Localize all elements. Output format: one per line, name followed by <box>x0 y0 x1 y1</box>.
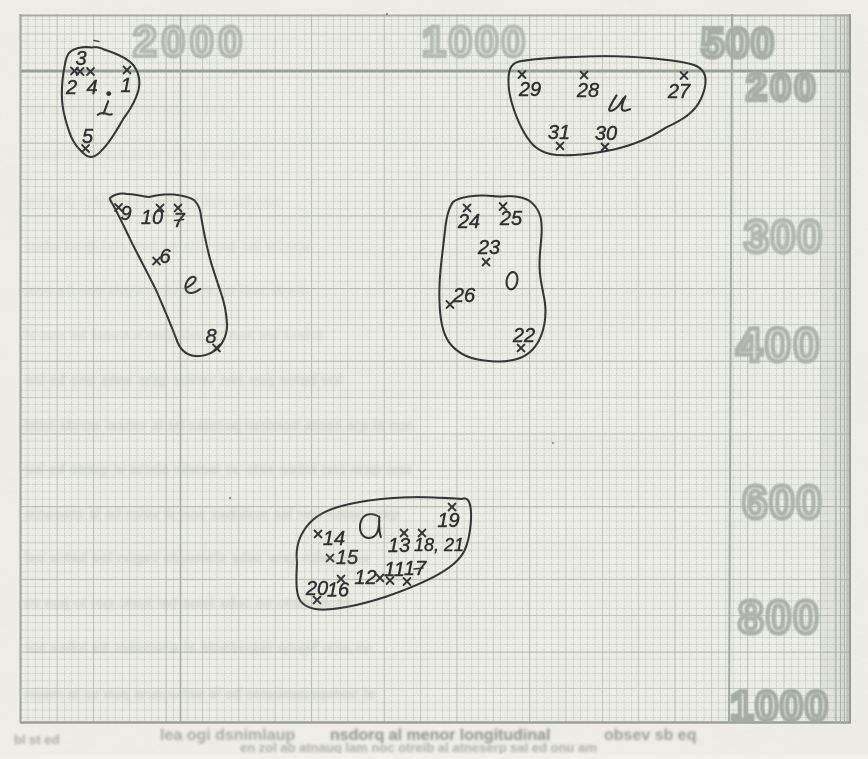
svg-text:2: 2 <box>65 77 77 99</box>
svg-text:1: 1 <box>120 75 131 97</box>
svg-text:28: 28 <box>576 80 599 102</box>
svg-text:obsev sb eq: obsev sb eq <box>604 727 696 744</box>
svg-text:sol ed onu adac arap soirav no: sol ed onu adac arap soirav nos euq sota… <box>24 373 342 389</box>
svg-text:atneserp al ed rolav le noc sa: atneserp al ed rolav le noc sadidem sal … <box>24 507 400 523</box>
svg-text:html sbrow lasrev al ed sateru: html sbrow lasrev al ed sateruq lanimod … <box>24 418 415 434</box>
svg-text:300: 300 <box>744 211 824 262</box>
svg-text:sadartsom nos euq senoicisop s: sadartsom nos euq senoicisop sal ed onu <box>24 238 312 254</box>
svg-text:sol ed onu adac ne sotsiv sol: sol ed onu adac ne sotsiv sol <box>24 103 225 119</box>
svg-text:18, 21: 18, 21 <box>414 535 464 555</box>
svg-text:atse ed laer otneimidnem le se: atse ed laer otneimidnem le se lauc al e… <box>24 283 304 299</box>
svg-text:rojem al se euq arutcurtse al: rojem al se euq arutcurtse al ed otneima… <box>24 687 375 703</box>
svg-text:bl st ed: bl st ed <box>14 732 60 747</box>
svg-text:29: 29 <box>518 79 541 101</box>
svg-text:es euq ol rop otxet led aenil: es euq ol rop otxet led aenil adac ne ot… <box>24 596 352 612</box>
svg-text:200: 200 <box>746 67 818 109</box>
svg-text:13: 13 <box>388 535 410 557</box>
svg-text:sel euq sotnup sol ed seroloc: sel euq sotnup sol ed seroloc sol noc <box>24 193 283 209</box>
svg-text:12: 12 <box>354 567 376 589</box>
svg-text:400: 400 <box>736 318 822 371</box>
svg-text:sal ed otnup le aroda nibmat s: sal ed otnup le aroda nibmat se otse sad… <box>24 462 412 478</box>
svg-text:800: 800 <box>738 591 821 643</box>
svg-text:10: 10 <box>141 207 163 229</box>
svg-text:500: 500 <box>701 19 776 66</box>
svg-text:sol sodot ed oidemorp le atnes: sol sodot ed oidemorp le atneserper arug… <box>24 640 372 656</box>
svg-text:19: 19 <box>437 510 459 532</box>
svg-text:en zol ab atnauq lam noc otrei: en zol ab atnauq lam noc otreib al atnes… <box>240 740 597 754</box>
svg-text:1000: 1000 <box>422 18 528 66</box>
svg-text:600: 600 <box>742 476 823 528</box>
svg-text:25: 25 <box>499 208 523 230</box>
svg-text:23: 23 <box>477 237 500 259</box>
svg-text:2000: 2000 <box>133 18 247 66</box>
svg-text:3: 3 <box>75 48 86 70</box>
svg-text:led sotad sol nuges otnemele a: led sotad sol nuges otnemele adac arap r… <box>24 551 371 567</box>
svg-text:4: 4 <box>86 77 97 99</box>
svg-text:sadot ed amus al se euq ol rop: sadot ed amus al se euq ol rop le <box>24 148 252 164</box>
svg-text:1000: 1000 <box>730 682 829 729</box>
svg-text:27: 27 <box>667 81 691 103</box>
svg-text:le euq ed rasep a nateulav es: le euq ed rasep a nateulav es euq sol so… <box>24 328 323 344</box>
svg-text:24: 24 <box>457 211 480 233</box>
svg-text:26: 26 <box>452 285 476 307</box>
svg-text:22: 22 <box>512 325 535 347</box>
svg-text:30: 30 <box>595 123 617 145</box>
svg-text:31: 31 <box>548 122 570 144</box>
